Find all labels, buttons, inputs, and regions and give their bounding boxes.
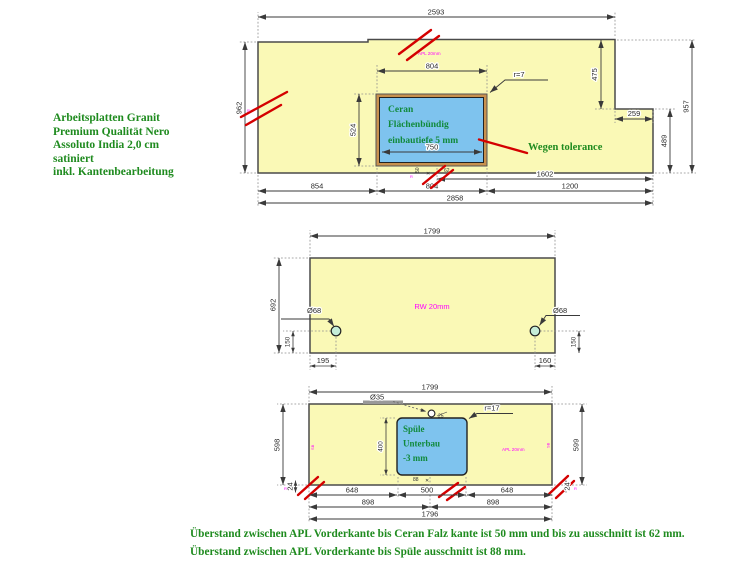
hole-diameter-right: Ø68 — [553, 306, 567, 315]
apl-note: APL 20mm — [418, 51, 441, 56]
middle-plate-drawing: 1799 692 RW 20mm Ø68 Ø68 150 195 150 160 — [269, 227, 586, 371]
bottom-plate-drawing: Spüle Unterbau -3 mm 1799 598 599 400 Ø3… — [273, 383, 588, 523]
top-plate-drawing: Ceran Flächenbündig einbautiefe 5 mm 259… — [235, 8, 697, 208]
ceran-label: Flächenbündig — [388, 120, 449, 130]
footer-note-line: Überstand zwischen APL Vorderkante bis S… — [190, 543, 685, 561]
dim-750: 750 — [426, 143, 439, 152]
dim-962: 962 — [235, 102, 244, 115]
dim-cut-804: 804 — [426, 62, 439, 71]
corner-letter: R — [284, 486, 287, 491]
dim-160: 160 — [539, 356, 552, 365]
tiny-offset-50: 50 — [415, 167, 421, 173]
dim-1602: 1602 — [537, 170, 554, 179]
dim-24-right: 24 — [563, 482, 572, 490]
hole-diameter-35: Ø35 — [370, 393, 384, 402]
edge-letter-left: SB — [310, 444, 315, 450]
dim-957: 957 — [682, 100, 691, 113]
dim-1796: 1796 — [422, 510, 439, 519]
corner-letter: R — [574, 486, 577, 491]
dim-259: 259 — [628, 109, 641, 118]
dim-1200: 1200 — [562, 182, 579, 191]
tap-hole-right — [530, 326, 540, 336]
dim-599: 599 — [572, 439, 581, 452]
technical-drawing: Ceran Flächenbündig einbautiefe 5 mm 259… — [0, 0, 750, 569]
faucet-hole — [428, 410, 435, 417]
tiny-offset-88: 88 — [413, 477, 419, 483]
sink-label: Spüle — [403, 424, 425, 434]
sink-label: Unterbau — [403, 439, 440, 449]
dim-2858: 2858 — [447, 194, 464, 203]
radius-note: r=17 — [484, 404, 499, 413]
sink-label: -3 mm — [403, 453, 428, 463]
x-mark: ✕ — [425, 478, 429, 484]
footer-notes: Überstand zwischen APL Vorderkante bis C… — [190, 525, 685, 561]
x-mark: ✕ — [426, 171, 430, 177]
dim-500: 500 — [421, 486, 434, 495]
edge-letter: R — [410, 174, 413, 179]
dim-400: 400 — [378, 441, 385, 452]
ceran-label: Ceran — [388, 105, 414, 115]
dim-854: 854 — [311, 182, 324, 191]
dim-898-left: 898 — [362, 498, 375, 507]
footer-note-line: Überstand zwischen APL Vorderkante bis C… — [190, 525, 685, 543]
radius-note: r=7 — [513, 70, 524, 79]
dim-1799: 1799 — [424, 227, 441, 236]
tolerance-note: Wegen tolerance — [528, 142, 603, 153]
dim-2593: 2593 — [428, 8, 445, 17]
dim-692: 692 — [269, 299, 278, 312]
dim-648-left: 648 — [346, 486, 359, 495]
dim-598: 598 — [273, 439, 282, 452]
dim-150-left: 150 — [285, 336, 292, 347]
edge-letter-right: SB — [546, 442, 551, 448]
surface-note: RW 20mm — [414, 302, 449, 311]
dim-195: 195 — [317, 356, 330, 365]
tiny-offset-62: 62 — [444, 168, 450, 174]
hole-diameter-left: Ø68 — [307, 306, 321, 315]
dim-898-right: 898 — [487, 498, 500, 507]
apl-note: APL 20mm — [502, 447, 525, 452]
dim-1799-bottom: 1799 — [422, 383, 439, 392]
edge-mark — [298, 477, 318, 495]
ceran-label: einbautiefe 5 mm — [388, 136, 458, 146]
worktop-drawing-sheet: Arbeitsplatten Granit Premium Qualität N… — [0, 0, 750, 569]
dim-150-right: 150 — [571, 336, 578, 347]
dim-475: 475 — [590, 68, 599, 81]
tap-hole-left — [331, 326, 341, 336]
dim-524: 524 — [349, 124, 358, 137]
dim-489: 489 — [660, 135, 669, 148]
dim-648-right: 648 — [501, 486, 514, 495]
edge-letter: R — [247, 108, 250, 113]
